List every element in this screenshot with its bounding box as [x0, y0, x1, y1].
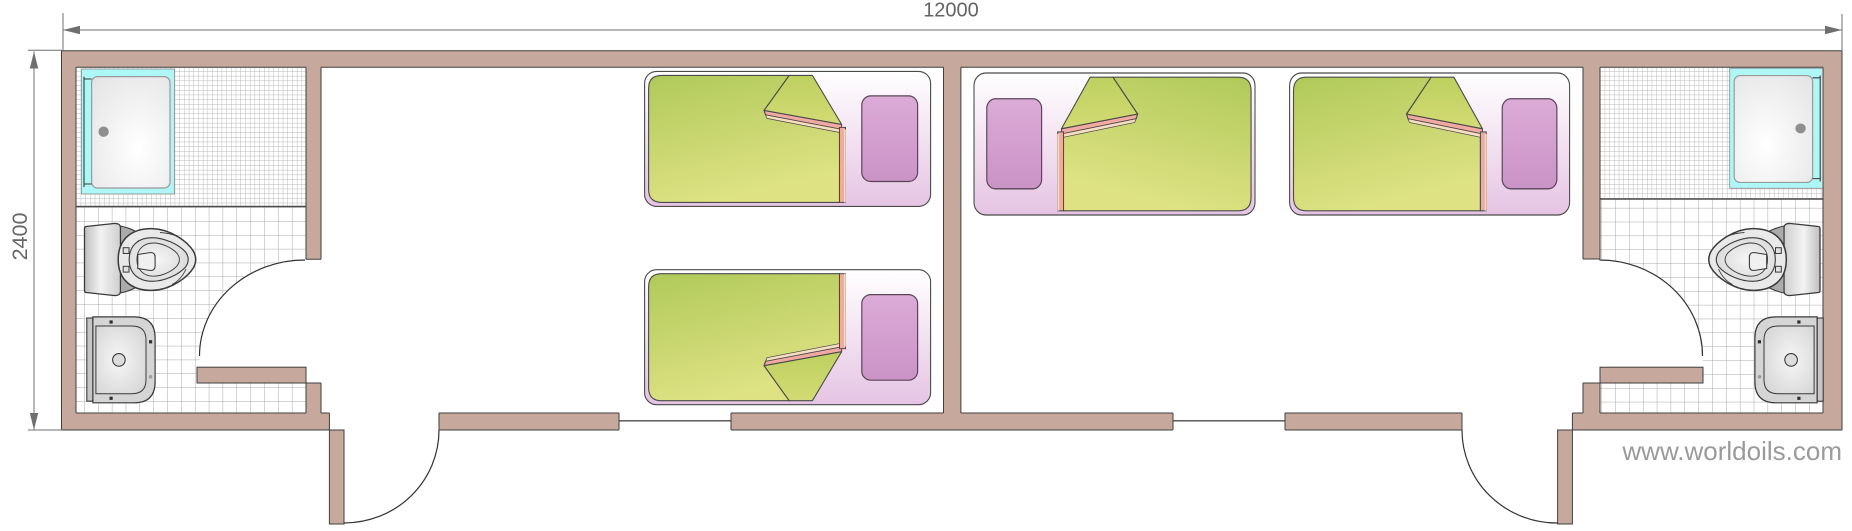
- svg-text:www.worldoils.com: www.worldoils.com: [1621, 436, 1842, 466]
- svg-text:2400: 2400: [8, 213, 32, 261]
- svg-text:12000: 12000: [923, 0, 979, 22]
